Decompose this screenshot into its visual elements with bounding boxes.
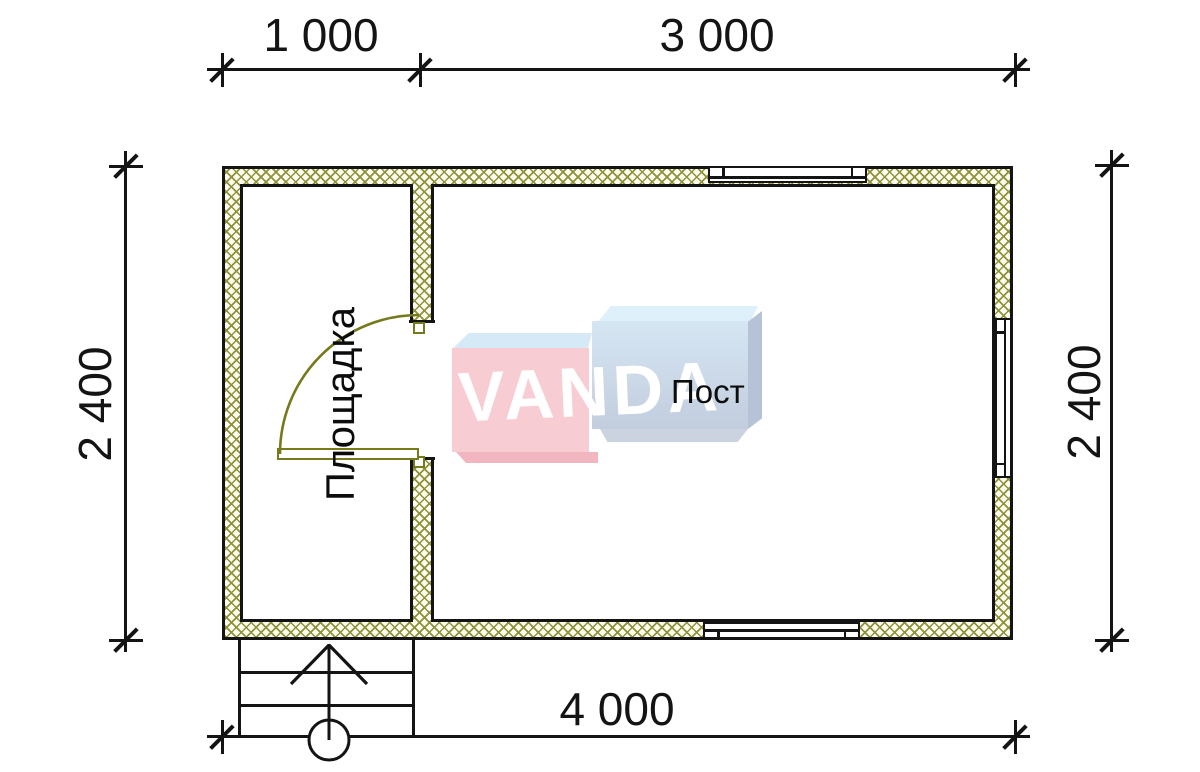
stair-start-circle [309, 720, 349, 760]
window-frame-stub [844, 629, 847, 638]
window-frame-stub [717, 629, 720, 638]
dimension-line-bottom [207, 735, 1030, 738]
window-frame-stub [997, 331, 1004, 334]
dimension-label-bottom: 4 000 [559, 686, 674, 732]
stair-side-line [238, 640, 241, 737]
window-right-wall [995, 318, 1012, 478]
room-label-platform: Площадка [321, 307, 361, 501]
stair-side-line [412, 640, 415, 737]
door-jamb-block [413, 322, 425, 334]
dimension-label-top-right: 3 000 [659, 12, 774, 58]
floor-plan-canvas: VANDA 1 000 3 000 4 000 2 4 [0, 0, 1200, 772]
watermark-blue-box-top-face [598, 306, 758, 322]
window-glass-line [710, 176, 865, 179]
dimension-line-left [124, 151, 127, 652]
room-label-post: Пост [671, 375, 745, 408]
dimension-line-right [1110, 150, 1113, 652]
watermark-pink-box-top-face [452, 333, 592, 349]
dimension-line-top [207, 68, 1030, 71]
dimension-label-right: 2 400 [1061, 344, 1107, 459]
watermark-pink-box-bottom-face [456, 452, 598, 463]
dimension-label-top-left: 1 000 [263, 12, 378, 58]
stair-direction-arrow [291, 645, 329, 684]
window-glass-line [705, 629, 858, 632]
stair-direction-arrow [329, 645, 367, 684]
dimension-label-left: 2 400 [72, 346, 118, 461]
window-frame-stub [851, 168, 854, 176]
stair-step-line [238, 704, 415, 707]
watermark-blue-box-bottom-face [600, 429, 748, 442]
door-opening [408, 323, 436, 457]
window-frame-stub [997, 463, 1004, 466]
window-bottom-wall [703, 622, 860, 639]
window-glass-line [1004, 320, 1007, 476]
window-frame-stub [722, 168, 725, 176]
window-top-wall [708, 166, 867, 183]
stair-step-line [238, 671, 415, 674]
